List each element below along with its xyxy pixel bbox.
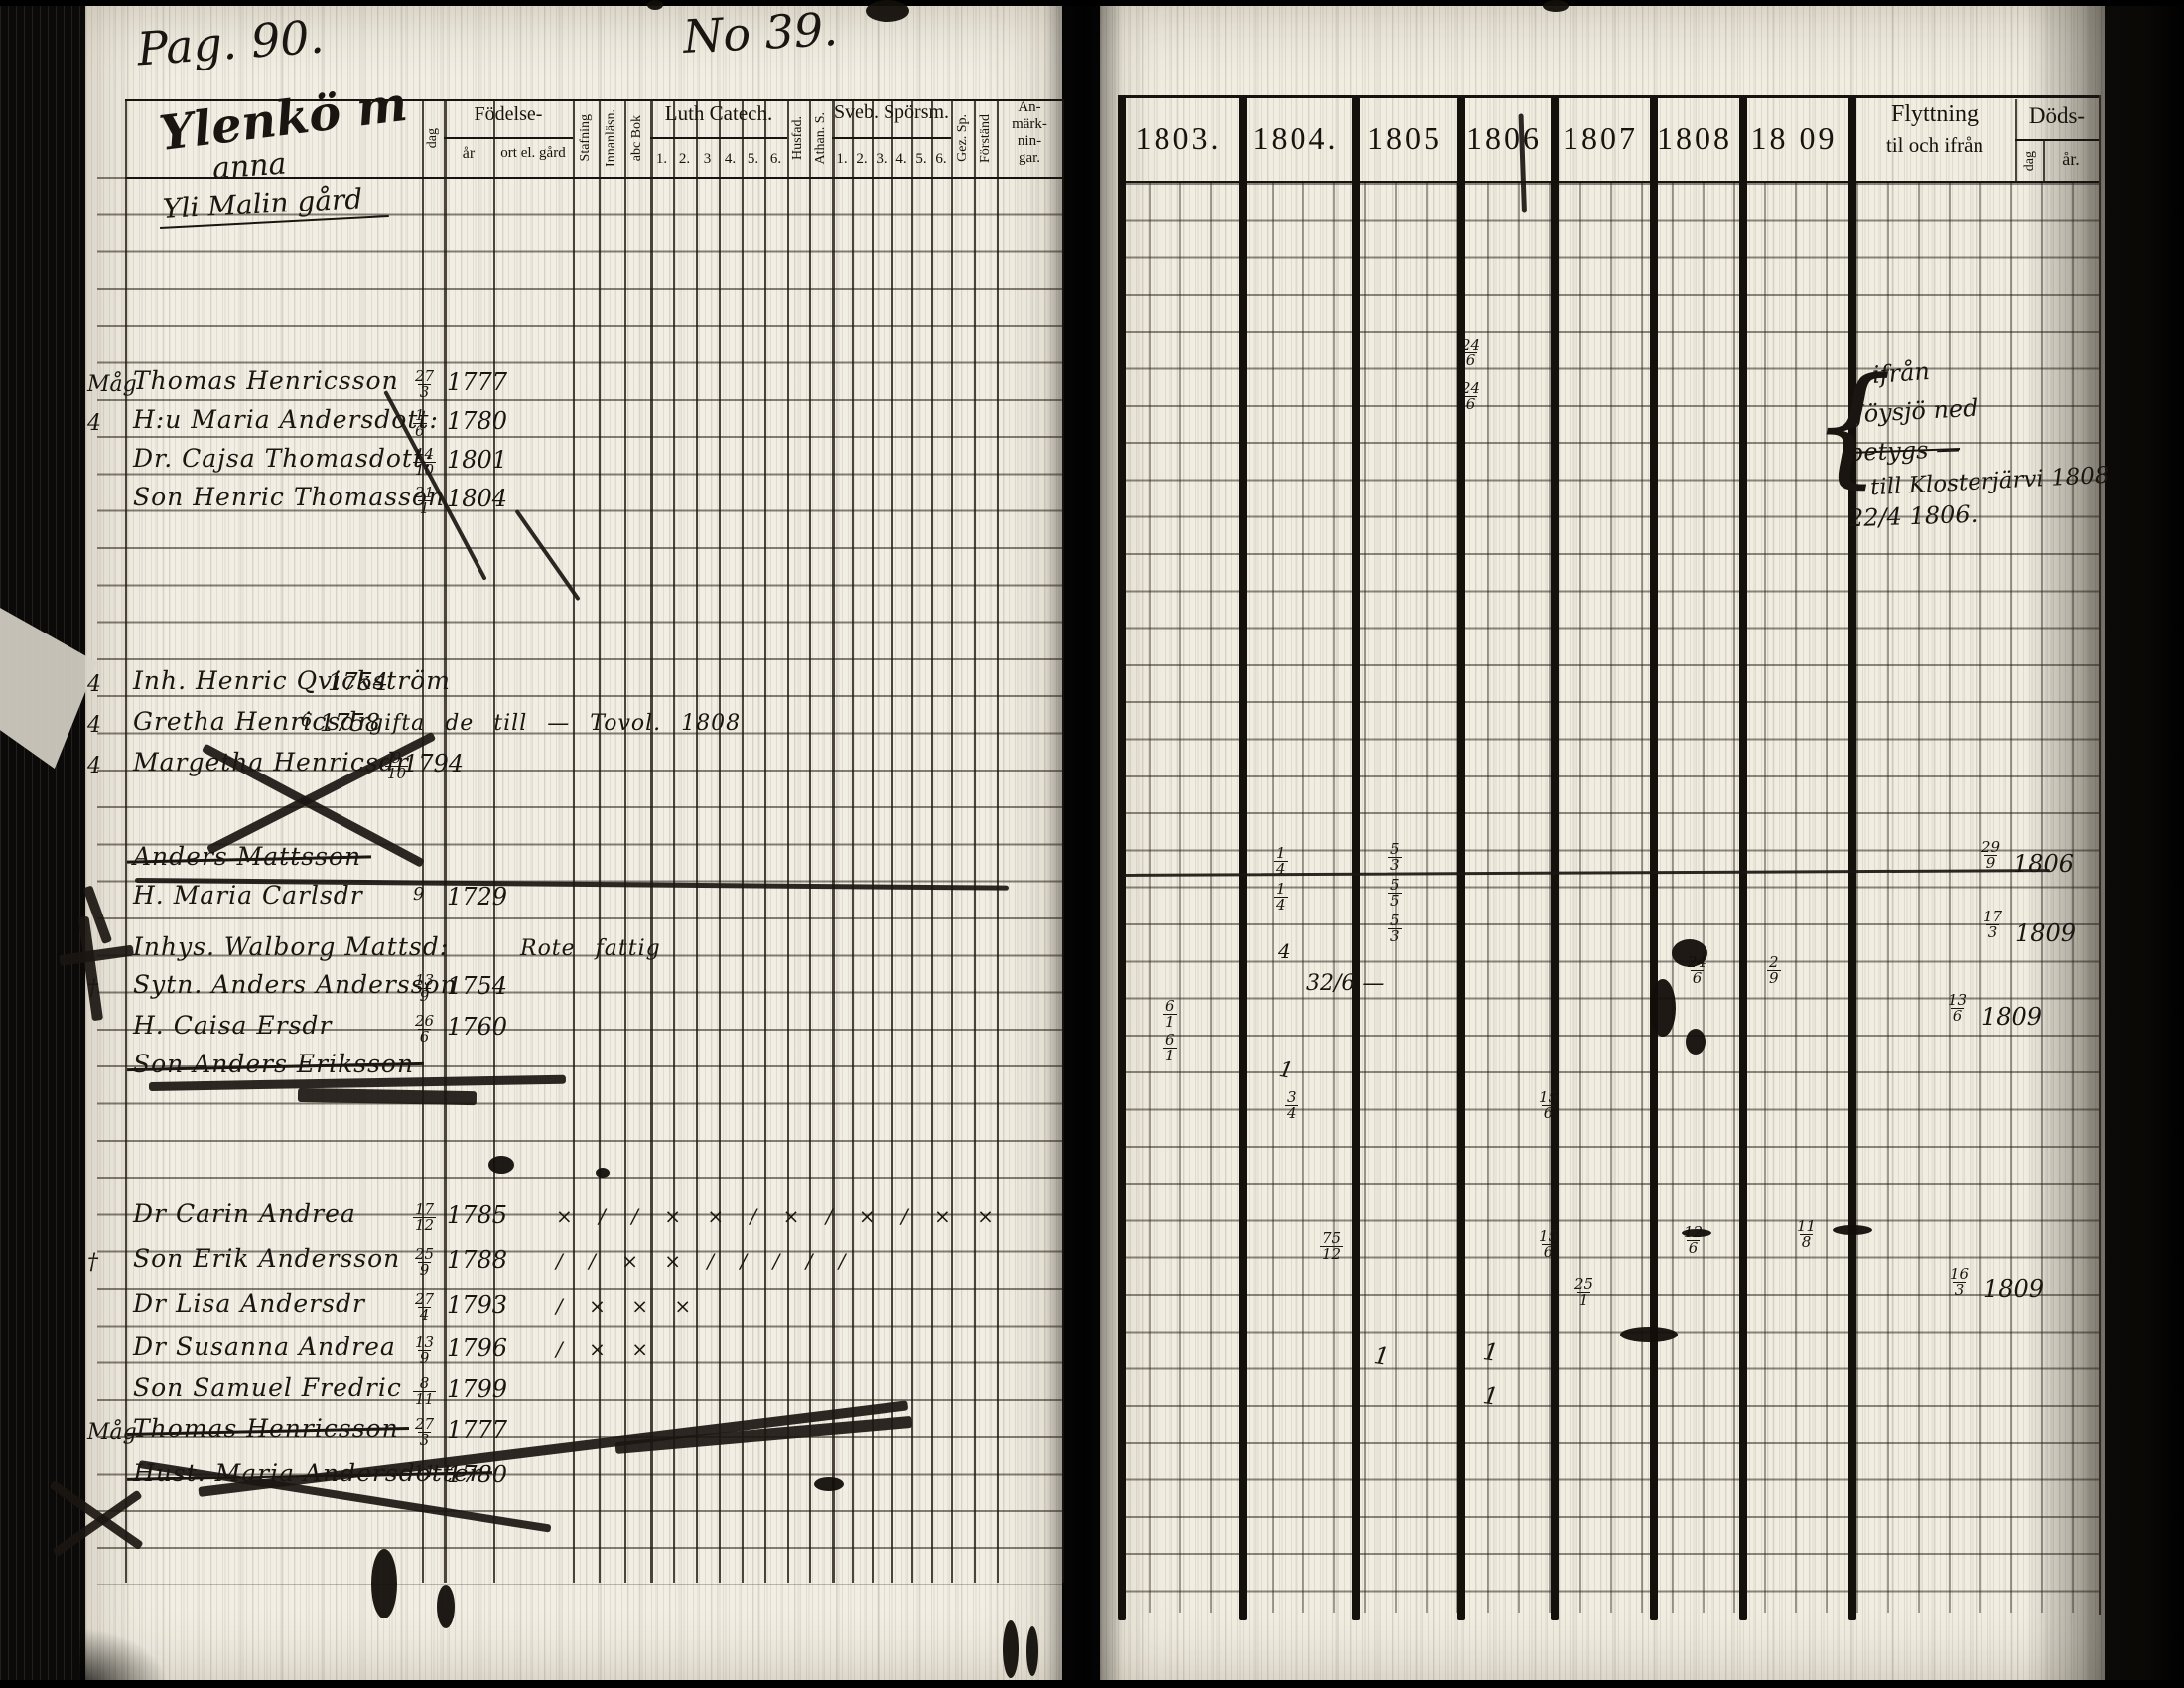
frac-bottom: 4 bbox=[1274, 897, 1288, 913]
record-name: Dr Carin Andrea bbox=[133, 1199, 356, 1228]
handwritten-mark: 136 bbox=[1946, 993, 1969, 1024]
frac-top: 13 bbox=[413, 1336, 436, 1350]
frac-bottom: 3 bbox=[1388, 857, 1402, 873]
column-rule bbox=[787, 99, 789, 1583]
frac-bottom: 3 bbox=[418, 384, 432, 400]
frac-bottom: 1 bbox=[1577, 1292, 1591, 1308]
vertical-column-header: Gez. Sp. bbox=[951, 99, 974, 177]
column-header-fodelse: Födelse- bbox=[444, 103, 573, 126]
frac-bottom: 6 bbox=[1951, 1008, 1965, 1024]
luth-catech-subcolumn: 2. bbox=[673, 141, 696, 177]
ink-blob bbox=[1003, 1620, 1019, 1678]
record-name: Inh. Henric Qvickström bbox=[133, 666, 451, 695]
frac-bottom: 12 bbox=[413, 1217, 436, 1233]
record-row: MågThomas Henricsson bbox=[133, 1414, 399, 1452]
luth-catech-subcolumn: 5. bbox=[742, 141, 764, 177]
record-row: Dr Carin Andrea bbox=[133, 1199, 356, 1237]
column-rule bbox=[951, 99, 953, 1583]
record-birth-date: 259 bbox=[413, 1247, 436, 1278]
frac-bottom: 5 bbox=[1388, 893, 1402, 909]
record-birth-year: 1777 bbox=[447, 1416, 507, 1444]
ink-blob bbox=[1686, 1029, 1706, 1055]
column-header-dods-ar: år. bbox=[2043, 149, 2099, 170]
scanned-parish-register-spread: Pag. 90. No 39. Ylenkö m anna Yli Malin … bbox=[0, 0, 2184, 1688]
header-rule-line bbox=[125, 177, 1062, 179]
handwritten-mark: 53 bbox=[1388, 842, 1402, 873]
frac-top: 17 bbox=[413, 1202, 436, 1217]
catechism-marks: × / / × × / × / × / × × bbox=[556, 1204, 1004, 1228]
catechism-marks: / × × × bbox=[556, 1294, 701, 1318]
record-birth-date: 811 bbox=[413, 1376, 436, 1407]
ink-blob bbox=[647, 0, 663, 10]
handwritten-mark: 156 bbox=[1537, 1090, 1560, 1121]
ink-blob bbox=[1543, 0, 1569, 12]
handwritten-mark: 4 bbox=[1278, 939, 1291, 963]
catechism-marks: / / × × / / / / / bbox=[556, 1249, 856, 1273]
handwritten-mark: 1809 bbox=[1983, 1275, 2044, 1303]
frac-bottom: 3 bbox=[418, 1432, 432, 1448]
dag-label: dag bbox=[425, 128, 441, 148]
record-name: Sytn. Anders Andersson bbox=[133, 970, 458, 999]
handwritten-mark: 246 bbox=[1459, 338, 1482, 368]
record-name: Thomas Henricsson bbox=[133, 366, 399, 395]
column-rule bbox=[974, 99, 976, 1583]
record-row: Dr Lisa Andersdr bbox=[133, 1289, 365, 1327]
vertical-column-header: Förständ bbox=[974, 99, 997, 177]
record-birth-year: 1754 bbox=[447, 972, 507, 1000]
record-birth-year: 1804 bbox=[447, 485, 507, 512]
vertical-column-header: abc Bok bbox=[624, 99, 650, 177]
record-row: H. Caisa Ersdr bbox=[133, 1011, 332, 1049]
frac-bottom: 3 bbox=[1953, 1282, 1967, 1298]
handwritten-mark: 14 bbox=[1274, 882, 1288, 913]
frac-bottom: 9 bbox=[418, 1262, 432, 1278]
frac-bottom: 6 bbox=[1691, 970, 1705, 986]
record-birth-year: 1780 bbox=[447, 407, 507, 435]
column-header-dag: dag bbox=[422, 99, 444, 177]
frac-top: 5 bbox=[1388, 878, 1402, 893]
frac-top: 15 bbox=[1537, 1229, 1560, 1244]
frac-bottom: 3 bbox=[1388, 928, 1402, 944]
column-rule bbox=[891, 99, 893, 1583]
document-number: No 39. bbox=[682, 2, 839, 64]
handwritten-mark: ifrån bbox=[1871, 357, 1931, 389]
frac-top: 15 bbox=[1537, 1090, 1560, 1105]
record-name: Son Anders Eriksson bbox=[133, 1050, 414, 1078]
record-name: Inhys. Walborg Mattsd: bbox=[133, 932, 449, 961]
luth-catech-subcolumn: 6. bbox=[764, 141, 787, 177]
frac-top: 24 bbox=[1459, 381, 1482, 396]
column-header-flyttning-sub: til och ifrån bbox=[1854, 133, 2015, 158]
year-column-bar bbox=[1848, 97, 1856, 1620]
gez-sp--label: Gez. Sp. bbox=[955, 114, 971, 162]
catechism-marks: / × × bbox=[556, 1337, 658, 1361]
frac-top: 13 bbox=[413, 973, 436, 988]
frac-top: 8 bbox=[418, 1376, 432, 1391]
frac-bottom: 4 bbox=[1285, 1105, 1298, 1121]
record-name: Dr Lisa Andersdr bbox=[133, 1289, 365, 1318]
right-header-rule bbox=[2099, 95, 2101, 1615]
ink-blob bbox=[1672, 939, 1707, 967]
handwritten-mark: 246 bbox=[1459, 381, 1482, 412]
record-name: H. Maria Carlsdr bbox=[133, 881, 363, 910]
frac-top: 1 bbox=[413, 408, 427, 423]
ink-blob bbox=[1682, 1229, 1711, 1237]
frac-bottom: 11 bbox=[413, 1391, 436, 1407]
stafning-label: Stafning bbox=[578, 114, 594, 161]
frac-bottom: 6 bbox=[1464, 396, 1478, 412]
record-row: MågThomas Henricsson bbox=[133, 366, 399, 404]
luth-catech-subcolumn: 3 bbox=[696, 141, 719, 177]
sveb-sporsm-subcolumn: 3. bbox=[872, 141, 891, 177]
frac-top: 3 bbox=[1285, 1090, 1298, 1105]
record-row: Dr Susanna Andrea bbox=[133, 1333, 396, 1370]
handwritten-mark: 32/6 — bbox=[1306, 971, 1384, 996]
frac-top: 25 bbox=[413, 1247, 436, 1262]
record-birth-date: 9 bbox=[413, 884, 424, 905]
scan-shadow-corner bbox=[79, 1628, 169, 1688]
anm-line: gar. bbox=[997, 150, 1062, 167]
frac-top: 27 bbox=[413, 1292, 436, 1307]
record-margin-mark: † bbox=[87, 1250, 98, 1275]
frac-top: 1 bbox=[1274, 882, 1288, 897]
frac-bottom: 1 bbox=[1163, 1014, 1177, 1030]
anm-line: märk- bbox=[997, 116, 1062, 133]
year-column-header: 1808 bbox=[1650, 103, 1739, 173]
handwritten-mark: 251 bbox=[1572, 1277, 1595, 1308]
handwritten-mark: 118 bbox=[1795, 1219, 1818, 1250]
record-note: gifta de till — Tovol. 1808 bbox=[369, 711, 741, 736]
scan-border-top bbox=[0, 0, 2184, 6]
handwritten-mark: 1809 bbox=[2015, 919, 2076, 947]
handwritten-mark: 156 bbox=[1537, 1229, 1560, 1260]
right-header-rule bbox=[2043, 139, 2045, 183]
record-name: Son Samuel Fredric bbox=[133, 1373, 402, 1402]
record-margin-mark: 4 bbox=[87, 672, 101, 697]
abc-bok-label: abc Bok bbox=[629, 115, 645, 161]
frac-top: 75 bbox=[1320, 1231, 1343, 1246]
record-row: Anders Mattsson bbox=[133, 842, 361, 880]
column-rule bbox=[1062, 99, 1064, 1583]
column-header-flyttning: Flyttning bbox=[1854, 101, 2015, 128]
year-column-header: 1805 bbox=[1352, 103, 1457, 173]
header-rule-line bbox=[1118, 95, 2099, 98]
record-birth-date: 273 bbox=[413, 1417, 436, 1448]
frac-bottom: 12 bbox=[1320, 1246, 1343, 1262]
frac-top: 5 bbox=[1388, 842, 1402, 857]
frac-bottom: 6 bbox=[1542, 1105, 1556, 1121]
record-margin-mark: 4 bbox=[87, 411, 101, 436]
handwritten-mark: 163 bbox=[1948, 1267, 1971, 1298]
ink-blob bbox=[814, 1477, 844, 1491]
frac-top: 24 bbox=[1459, 338, 1482, 352]
year-column-bar bbox=[1118, 97, 1126, 1620]
handwritten-mark: 34 bbox=[1285, 1090, 1298, 1121]
frac-top: 2 bbox=[1767, 955, 1781, 970]
record-birth-date: 139 bbox=[413, 1336, 436, 1366]
record-birth-date: 273 bbox=[413, 369, 436, 400]
record-row: Inhys. Walborg Mattsd: bbox=[133, 932, 449, 970]
record-birth-year: 1777 bbox=[447, 368, 507, 396]
header-rule-line bbox=[1118, 181, 2099, 183]
column-rule bbox=[997, 99, 999, 1583]
anm-line: An- bbox=[997, 99, 1062, 116]
frac-top: 5 bbox=[1388, 914, 1402, 928]
record-margin-mark: Måg bbox=[87, 372, 137, 397]
handwritten-mark: 61 bbox=[1163, 1033, 1177, 1063]
year-column-bar bbox=[1457, 97, 1465, 1620]
record-row: Dr. Cajsa Thomasdott: bbox=[133, 444, 433, 482]
innanl-sn--label: Innanläsn. bbox=[604, 109, 619, 167]
column-header-dods-dag: dag bbox=[2017, 141, 2043, 181]
sveb-sporsm-subcolumn: 6. bbox=[931, 141, 951, 177]
frac-top: 1 bbox=[1274, 846, 1288, 861]
frac-bottom: 6 bbox=[1542, 1244, 1556, 1260]
record-birth-date: 274 bbox=[413, 1292, 436, 1323]
record-name: Thomas Henricsson bbox=[133, 1414, 399, 1443]
ink-blob bbox=[437, 1585, 455, 1628]
frac-bottom: 6 bbox=[418, 1029, 432, 1045]
year-column-bar bbox=[1650, 97, 1658, 1620]
record-birth-year: 1788 bbox=[447, 1246, 507, 1274]
column-rule bbox=[872, 99, 874, 1583]
record-row: 4Inh. Henric Qvickström bbox=[133, 666, 451, 704]
record-birth-year: 1760 bbox=[447, 1013, 507, 1041]
ink-blob bbox=[596, 1168, 610, 1178]
ink-blob bbox=[1650, 979, 1676, 1037]
record-birth-year: 1801 bbox=[447, 446, 507, 474]
vertical-column-header: Husfad. bbox=[787, 99, 809, 177]
ink-blob bbox=[371, 1549, 397, 1618]
record-name: H. Caisa Ersdr bbox=[133, 1011, 332, 1040]
column-rule bbox=[931, 99, 933, 1583]
record-row: †Son Erik Andersson bbox=[133, 1244, 400, 1282]
vertical-column-header: Athan. S. bbox=[809, 99, 832, 177]
handwritten-mark: betygs — bbox=[1848, 435, 1961, 467]
frac-bottom: 8 bbox=[1800, 1234, 1814, 1250]
frac-bottom: 6 bbox=[413, 423, 427, 439]
column-rule bbox=[809, 99, 811, 1583]
frac-bottom: 3 bbox=[1986, 924, 2000, 940]
handwritten-mark: 55 bbox=[1388, 878, 1402, 909]
record-birth-date: 266 bbox=[413, 1014, 436, 1045]
ink-blob bbox=[866, 0, 909, 22]
handwritten-mark: 53 bbox=[1388, 914, 1402, 944]
athan-s--label: Athan. S. bbox=[813, 112, 829, 165]
record-row: H. Maria Carlsdr bbox=[133, 881, 363, 918]
column-rule bbox=[696, 99, 698, 1583]
column-rule bbox=[125, 99, 127, 1583]
handwritten-mark: 22/4 1806. bbox=[1848, 500, 1979, 533]
year-column-bar bbox=[1352, 97, 1360, 1620]
anm-line: nin- bbox=[997, 133, 1062, 150]
frac-top: 6 bbox=[1163, 1033, 1177, 1048]
column-rule bbox=[719, 99, 721, 1583]
column-header-ort-el-gard: ort el. gård bbox=[493, 145, 573, 162]
sveb-sporsm-subcolumn: 5. bbox=[911, 141, 931, 177]
handwritten-mark: 7512 bbox=[1320, 1231, 1343, 1262]
year-column-header: 1807 bbox=[1551, 103, 1650, 173]
record-name: Dr Susanna Andrea bbox=[133, 1333, 396, 1361]
column-header-dods: Döds- bbox=[2015, 103, 2099, 129]
record-margin-mark: 4 bbox=[87, 713, 101, 738]
record-name: Son Erik Andersson bbox=[133, 1244, 400, 1273]
column-rule bbox=[764, 99, 766, 1583]
record-margin-mark: 4 bbox=[87, 754, 101, 778]
ink-blob bbox=[1620, 1327, 1678, 1342]
record-row: Son Henric Thomasson bbox=[133, 483, 445, 520]
frac-top: 11 bbox=[1795, 1219, 1818, 1234]
column-rule bbox=[852, 99, 854, 1583]
vertical-column-header: Innanläsn. bbox=[599, 99, 624, 177]
frac-top: 27 bbox=[413, 1417, 436, 1432]
frac-top: 25 bbox=[1572, 1277, 1595, 1292]
record-name: Son Henric Thomasson bbox=[133, 483, 445, 511]
sveb-sporsm-subcolumn: 1. bbox=[832, 141, 852, 177]
sveb-sporsm-subcolumn: 2. bbox=[852, 141, 872, 177]
record-birth-year: 1754 bbox=[328, 668, 388, 696]
frac-top: 26 bbox=[413, 1014, 436, 1029]
header-rule-line bbox=[2015, 139, 2099, 141]
dods-dag-label: dag bbox=[2022, 151, 2038, 171]
right-header-rule bbox=[2015, 99, 2017, 183]
column-rule bbox=[673, 99, 675, 1583]
frac-bottom: 1 bbox=[1163, 1048, 1177, 1063]
handwritten-mark: 1806 bbox=[2013, 850, 2074, 878]
column-rule bbox=[742, 99, 744, 1583]
record-birth-year: 1793 bbox=[447, 1291, 507, 1319]
frac-bottom: 9 bbox=[418, 1350, 432, 1366]
handwritten-mark: 173 bbox=[1981, 910, 2004, 940]
record-name: Anders Mattsson bbox=[133, 842, 361, 871]
record-birth-year: 1785 bbox=[447, 1201, 507, 1229]
year-column-bar bbox=[1551, 97, 1559, 1620]
sveb-sporsm-subcolumn: 4. bbox=[891, 141, 911, 177]
header-rule-line bbox=[444, 137, 573, 139]
record-birth-year: 1796 bbox=[447, 1335, 507, 1362]
column-header-ar: år bbox=[444, 145, 493, 163]
column-rule bbox=[911, 99, 913, 1583]
scan-border-bottom bbox=[0, 1680, 2184, 1688]
vertical-column-header: Stafning bbox=[573, 99, 599, 177]
luth-catech-subcolumn: 4. bbox=[719, 141, 742, 177]
column-header-anmarkningar: An- märk- nin- gar. bbox=[997, 99, 1062, 167]
f-rst-nd-label: Förständ bbox=[978, 114, 994, 163]
year-column-header: 1806 bbox=[1457, 103, 1551, 173]
handwritten-mark: 299 bbox=[1979, 840, 2002, 871]
frac-bottom: 1 bbox=[418, 500, 432, 516]
record-birth-year: 1794 bbox=[403, 750, 464, 777]
record-birth-date: 6 bbox=[301, 710, 312, 731]
ink-blob bbox=[1833, 1225, 1872, 1235]
frac-top: 29 bbox=[1979, 840, 2002, 855]
frac-top: 27 bbox=[413, 369, 436, 384]
frac-top: 13 bbox=[1946, 993, 1969, 1008]
luth-catech-subcolumn: 1. bbox=[650, 141, 673, 177]
handwritten-mark: 1809 bbox=[1981, 1003, 2042, 1031]
record-birth-date: 16 bbox=[413, 408, 427, 439]
frac-top: 17 bbox=[1981, 910, 2004, 924]
record-birth-date: 211 bbox=[413, 486, 436, 516]
year-column-header: 1803. bbox=[1118, 103, 1239, 173]
frac-bottom: 9 bbox=[418, 988, 432, 1004]
column-rule bbox=[832, 99, 835, 1583]
year-column-bar bbox=[1239, 97, 1247, 1620]
record-birth-year: 1799 bbox=[447, 1375, 507, 1403]
record-row: †Sytn. Anders Andersson bbox=[133, 970, 458, 1008]
record-birth-date: 139 bbox=[413, 973, 436, 1004]
frac-bottom: 6 bbox=[1687, 1240, 1701, 1256]
frac-top: 21 bbox=[413, 486, 436, 500]
frac-bottom: 9 bbox=[1767, 970, 1781, 986]
frac-bottom: 6 bbox=[1464, 352, 1478, 368]
record-birth-date: 1712 bbox=[413, 1202, 436, 1233]
year-column-header: 1804. bbox=[1239, 103, 1352, 173]
record-note: Rote fattig bbox=[520, 936, 661, 961]
handwritten-mark: 61 bbox=[1163, 999, 1177, 1030]
ink-blob bbox=[488, 1156, 514, 1174]
record-birth-year: 1729 bbox=[447, 883, 507, 911]
year-column-header: 18 09 bbox=[1739, 103, 1848, 173]
frac-top: 6 bbox=[1163, 999, 1177, 1014]
year-column-bar bbox=[1739, 97, 1747, 1620]
husfad--label: Husfad. bbox=[790, 116, 806, 160]
ink-blob bbox=[1026, 1626, 1038, 1676]
handwritten-mark: 29 bbox=[1767, 955, 1781, 986]
frac-top: 16 bbox=[1948, 1267, 1971, 1282]
record-name: Dr. Cajsa Thomasdott: bbox=[133, 444, 433, 473]
record-row: Son Samuel Fredric bbox=[133, 1373, 402, 1411]
book-edge-left bbox=[0, 0, 85, 1688]
frac-bottom: 4 bbox=[418, 1307, 432, 1323]
